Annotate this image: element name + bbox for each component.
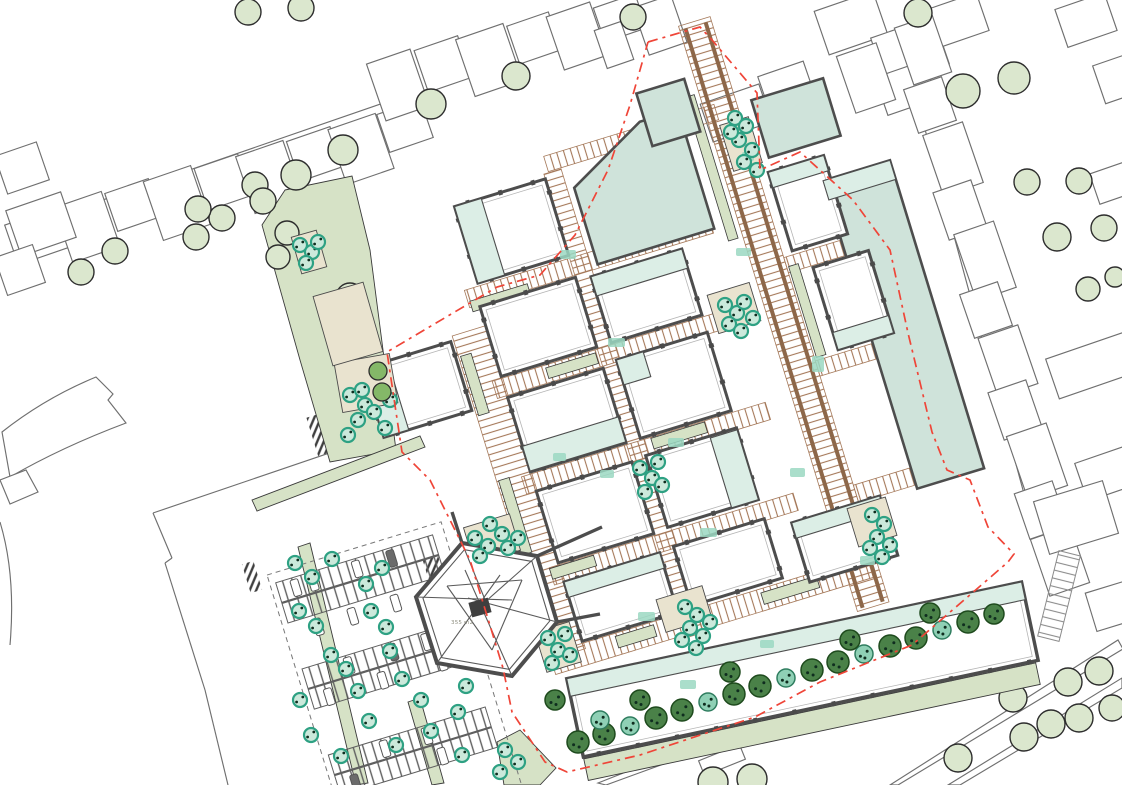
shape [359, 416, 362, 419]
shape [295, 246, 298, 249]
shape [294, 612, 297, 615]
existing-tree [416, 89, 446, 119]
shape [566, 630, 569, 633]
shape [937, 631, 940, 634]
shape [495, 527, 509, 541]
shape [699, 693, 717, 711]
shape [545, 656, 559, 670]
shape [313, 573, 316, 576]
shape [742, 327, 745, 330]
proposed-tree [746, 311, 760, 325]
proposed-tree [362, 714, 376, 728]
shape [307, 578, 310, 581]
proposed-tree [511, 755, 525, 769]
shape [725, 673, 728, 676]
shape [375, 561, 389, 575]
shape [459, 679, 473, 693]
proposed-tree [334, 749, 348, 763]
shape [726, 133, 729, 136]
proposed-tree [473, 549, 487, 563]
shape [334, 749, 348, 763]
shape [658, 713, 661, 716]
shape [341, 670, 344, 673]
existing-tree [281, 160, 311, 190]
shape [391, 746, 394, 749]
shape [553, 659, 556, 662]
shape [305, 570, 319, 584]
proposed-tree [483, 517, 497, 531]
shape [489, 542, 492, 545]
shape [511, 531, 525, 545]
shape [513, 539, 516, 542]
shape [501, 768, 504, 771]
proposed-tree [351, 684, 365, 698]
shrub-mass [736, 248, 751, 256]
proposed-tree [379, 620, 393, 634]
shape [801, 659, 823, 681]
shape [324, 648, 338, 662]
shape [630, 690, 650, 710]
shape [653, 474, 656, 477]
shape [598, 735, 601, 738]
shape [355, 383, 369, 397]
context-building [0, 522, 12, 645]
existing-tree [1085, 657, 1113, 685]
shape [333, 555, 336, 558]
shape [683, 636, 686, 639]
site-plan-canvas: 355 m2 [0, 0, 1122, 785]
existing-tree [102, 238, 128, 264]
shape [389, 738, 403, 752]
street-tree-dark [749, 675, 771, 697]
existing-tree [68, 259, 94, 285]
shape [558, 627, 572, 641]
shape [703, 615, 717, 629]
shrub-mass [700, 528, 717, 537]
shape [550, 701, 553, 704]
shape [476, 534, 479, 537]
shape [873, 511, 876, 514]
shape [555, 703, 558, 706]
existing-tree [328, 135, 358, 165]
context-building [0, 142, 49, 194]
shape [500, 751, 503, 754]
street-tree-dark [630, 690, 650, 710]
shape [737, 295, 751, 309]
shape [367, 580, 370, 583]
shape [306, 736, 309, 739]
shape [309, 619, 323, 633]
shape [641, 464, 644, 467]
shape [737, 155, 751, 169]
shape [663, 481, 666, 484]
shape [547, 664, 550, 667]
proposed-tree [863, 541, 877, 555]
shape [968, 625, 971, 628]
proposed-tree [655, 478, 669, 492]
proposed-tree [292, 604, 306, 618]
shape [357, 391, 360, 394]
shape [877, 517, 891, 531]
proposed-tree [468, 531, 482, 545]
shape [364, 604, 378, 618]
existing-tree [944, 744, 972, 772]
shape [602, 716, 605, 719]
context-building [2, 377, 126, 477]
shape [362, 714, 376, 728]
shape [483, 517, 497, 531]
shape [604, 737, 607, 740]
shape [339, 662, 353, 676]
shape [326, 656, 329, 659]
proposed-tree [414, 693, 428, 707]
shape [292, 604, 306, 618]
shape [832, 663, 835, 666]
shape [549, 634, 552, 637]
shape [559, 646, 562, 649]
shape [327, 560, 330, 563]
street-tree-light [621, 717, 639, 735]
shape [422, 696, 425, 699]
shape [473, 549, 487, 563]
shape [485, 525, 488, 528]
shape [859, 655, 862, 658]
shape [884, 647, 887, 650]
proposed-tree [364, 604, 378, 618]
shape [625, 727, 628, 730]
street-tree-dark [720, 662, 740, 682]
proposed-tree [558, 627, 572, 641]
shape [369, 413, 372, 416]
existing-tree [1099, 695, 1122, 721]
proposed-tree [511, 531, 525, 545]
street-tree-dark [567, 731, 589, 753]
proposed-tree [638, 485, 652, 499]
shape [676, 711, 679, 714]
shape [686, 603, 689, 606]
shape [519, 534, 522, 537]
shape [910, 639, 913, 642]
shape [747, 151, 750, 154]
street-tree-dark [801, 659, 823, 681]
shape [877, 558, 880, 561]
existing-tree [620, 4, 646, 30]
street-tree-dark [723, 683, 745, 705]
proposed-tree [493, 765, 507, 779]
shape [996, 610, 999, 613]
street-tree-dark [645, 707, 667, 729]
proposed-tree [633, 461, 647, 475]
context-street-line [165, 563, 205, 690]
proposed-tree [689, 641, 703, 655]
shape [747, 122, 750, 125]
shape [387, 623, 390, 626]
shape [621, 717, 639, 735]
shape [426, 732, 429, 735]
shape [890, 649, 893, 652]
proposed-tree [541, 631, 555, 645]
shape [760, 689, 763, 692]
shape [341, 428, 355, 442]
shape [567, 731, 589, 753]
shape [493, 765, 507, 779]
shape [646, 488, 649, 491]
existing-tree [737, 764, 767, 785]
proposed-tree [355, 383, 369, 397]
proposed-tree [455, 748, 469, 762]
shape [734, 697, 737, 700]
shape [541, 631, 555, 645]
shape [461, 687, 464, 690]
shape [720, 306, 723, 309]
shape [753, 146, 756, 149]
shape [838, 665, 841, 668]
street-tree-dark [671, 699, 693, 721]
shape [689, 641, 703, 655]
specimen-tree [373, 383, 391, 401]
shape [994, 617, 997, 620]
shape [497, 535, 500, 538]
proposed-tree [545, 656, 559, 670]
shape [565, 656, 568, 659]
shape [827, 651, 849, 673]
shape [463, 751, 466, 754]
shape [557, 696, 560, 699]
existing-tree [502, 62, 530, 90]
pavilion-area-label: 355 m2 [451, 620, 473, 626]
shape [944, 626, 947, 629]
context-building [923, 122, 984, 196]
shape [736, 689, 739, 692]
proposed-tree [299, 256, 313, 270]
shape [647, 479, 650, 482]
proposed-tree [339, 662, 353, 676]
shape [863, 657, 866, 660]
shape [364, 722, 367, 725]
shape [640, 493, 643, 496]
shape [375, 408, 378, 411]
shape [498, 743, 512, 757]
shape [711, 618, 714, 621]
shape [455, 748, 469, 762]
shape [645, 707, 667, 729]
proposed-tree [341, 428, 355, 442]
context-building [1085, 579, 1122, 632]
shape [724, 325, 727, 328]
shrub-mass [760, 640, 774, 648]
shape [863, 541, 877, 555]
shape [745, 298, 748, 301]
shape [353, 692, 356, 695]
proposed-tree [395, 672, 409, 686]
shape [705, 623, 708, 626]
shape [762, 681, 765, 684]
shape [732, 668, 735, 671]
shape [984, 604, 1004, 624]
proposed-tree [375, 561, 389, 575]
existing-tree [266, 245, 290, 269]
shape [736, 332, 739, 335]
shape [957, 611, 979, 633]
shape [883, 553, 886, 556]
shape [468, 531, 482, 545]
shape [920, 603, 940, 623]
shape [386, 424, 389, 427]
proposed-tree [324, 648, 338, 662]
existing-tree [998, 62, 1030, 94]
site-plan-page: 355 m2 [0, 0, 1122, 785]
shape [629, 729, 632, 732]
shape [391, 647, 394, 650]
shape [481, 552, 484, 555]
shape [734, 324, 748, 338]
shape [812, 673, 815, 676]
shape [343, 436, 346, 439]
shape [635, 701, 638, 704]
shape [750, 163, 764, 177]
shape [307, 253, 310, 256]
shape [509, 544, 512, 547]
shape [351, 684, 365, 698]
shape [363, 386, 366, 389]
shape [300, 607, 303, 610]
context-street-line [165, 558, 172, 563]
proposed-tree [750, 163, 764, 177]
context-building [1093, 52, 1122, 103]
shape [932, 609, 935, 612]
street-tree-dark [984, 604, 1004, 624]
shape [865, 508, 879, 522]
shrub-mass [812, 356, 824, 372]
shrub-mass [680, 680, 696, 689]
shape [736, 114, 739, 117]
proposed-tree [325, 552, 339, 566]
shape [301, 241, 304, 244]
proposed-tree [675, 633, 689, 647]
shape [740, 136, 743, 139]
proposed-tree [875, 550, 889, 564]
shape [424, 724, 438, 738]
shape [930, 616, 933, 619]
shape [638, 485, 652, 499]
shape [739, 119, 753, 133]
shape [734, 141, 737, 144]
shape [475, 557, 478, 560]
shape [806, 671, 809, 674]
shape [571, 651, 574, 654]
shape [878, 533, 881, 536]
proposed-tree [359, 577, 373, 591]
shape [495, 773, 498, 776]
proposed-tree [451, 705, 465, 719]
street-tree-light [699, 693, 717, 711]
proposed-tree [865, 508, 879, 522]
shape [745, 158, 748, 161]
shape [385, 652, 388, 655]
shape [519, 758, 522, 761]
shape [685, 629, 688, 632]
shrub-mass [790, 468, 805, 477]
street-tree-light [933, 621, 951, 639]
shape [432, 727, 435, 730]
shape [381, 628, 384, 631]
shape [855, 645, 873, 663]
shape [366, 612, 369, 615]
proposed-tree [737, 155, 751, 169]
shape [730, 119, 733, 122]
proposed-tree [304, 728, 318, 742]
shape [599, 723, 602, 726]
shape [459, 708, 462, 711]
context-street-line [205, 690, 228, 785]
street-tree-dark [957, 611, 979, 633]
shape [749, 675, 771, 697]
shape [872, 538, 875, 541]
shape [850, 643, 853, 646]
shape [553, 651, 556, 654]
shape [336, 757, 339, 760]
shape [640, 703, 643, 706]
shape [682, 713, 685, 716]
shape [513, 763, 516, 766]
shape [752, 171, 755, 174]
shape [367, 405, 381, 419]
shape [545, 690, 565, 710]
shape [781, 679, 784, 682]
proposed-tree [690, 608, 704, 622]
shape [361, 585, 364, 588]
shape [704, 632, 707, 635]
shape [651, 455, 665, 469]
existing-tree [1091, 215, 1117, 241]
shape [372, 607, 375, 610]
shape [491, 520, 494, 523]
shape [312, 731, 315, 734]
proposed-tree [877, 517, 891, 531]
shape [332, 651, 335, 654]
existing-tree [185, 196, 211, 222]
shrub-mass [553, 453, 566, 461]
shape [633, 461, 647, 475]
shape [866, 650, 869, 653]
proposed-tree [293, 693, 307, 707]
street-tree-light [591, 711, 609, 729]
shape [730, 320, 733, 323]
shape [453, 713, 456, 716]
shape [301, 264, 304, 267]
shape [659, 458, 662, 461]
shape [503, 549, 506, 552]
context-street-line [153, 513, 172, 558]
shape [723, 683, 745, 705]
shape [403, 675, 406, 678]
proposed-tree [703, 615, 717, 629]
proposed-tree [305, 570, 319, 584]
shape [606, 729, 609, 732]
shape [377, 569, 380, 572]
shape [353, 421, 356, 424]
existing-tree [1105, 267, 1122, 287]
shape [690, 608, 704, 622]
context-building [1046, 329, 1122, 399]
shape [578, 745, 581, 748]
proposed-tree [724, 125, 738, 139]
shape [383, 564, 386, 567]
shape [359, 687, 362, 690]
shrub-mass [638, 612, 655, 621]
shape [296, 559, 299, 562]
shape [677, 641, 680, 644]
